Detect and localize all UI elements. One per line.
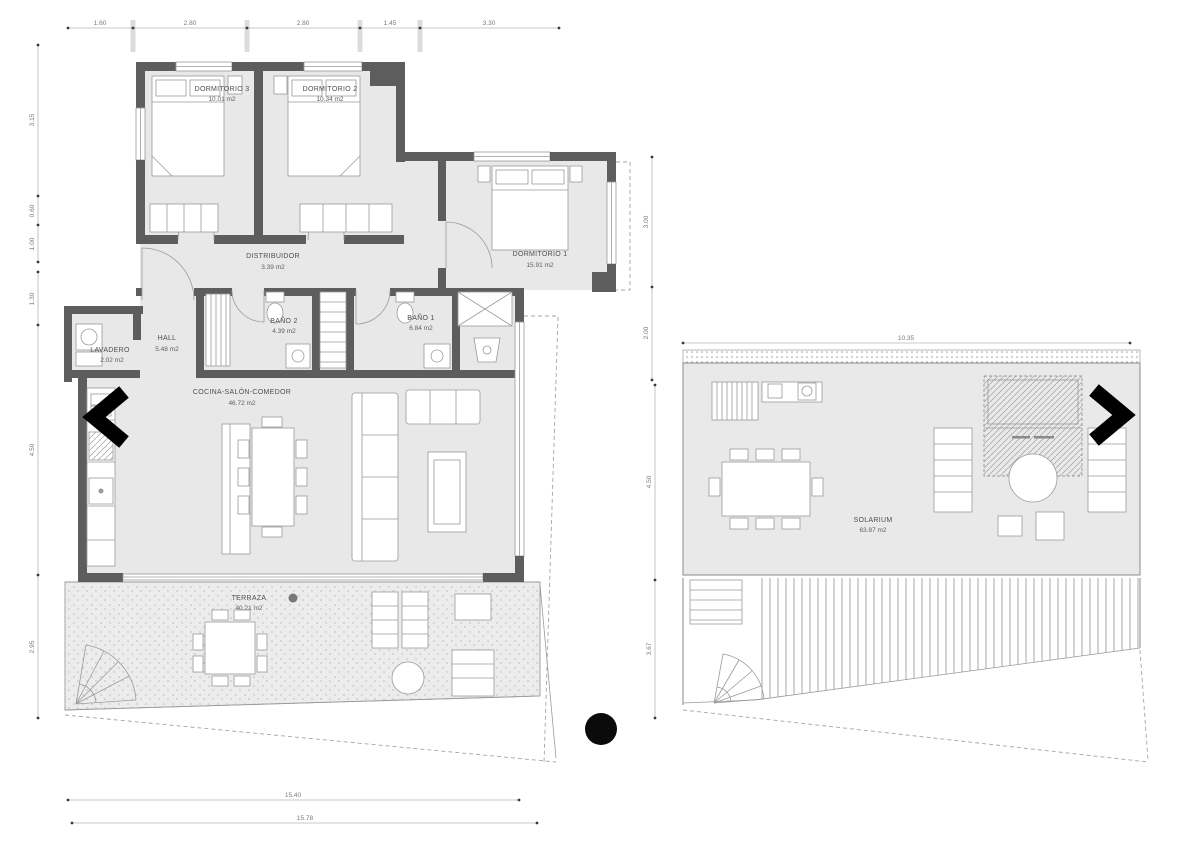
room-label-solarium-area: 63.87 m2 bbox=[859, 527, 886, 534]
linen-closet-symbol bbox=[320, 292, 346, 368]
lower-deck-band bbox=[683, 578, 1148, 762]
dim-solarium-left-0: 4.50 bbox=[646, 475, 653, 488]
window-dormitorio3 bbox=[176, 62, 232, 71]
room-label-cocina-area: 46.72 m2 bbox=[228, 400, 255, 407]
dim-bottom-1: 15.78 bbox=[297, 815, 314, 822]
solarium-roof-edge bbox=[683, 350, 1140, 363]
black-dot-marker bbox=[585, 713, 617, 745]
dim-left-0: 3.15 bbox=[29, 113, 36, 126]
window-terrace-sliding bbox=[123, 574, 483, 580]
dim-left-2: 1.00 bbox=[29, 237, 36, 250]
room-label-lavadero-name: LAVADERO bbox=[90, 347, 130, 354]
sink-symbol-bath2 bbox=[286, 344, 310, 368]
room-label-terraza-name: TERRAZA bbox=[232, 595, 267, 602]
window-dormitorio1-side bbox=[607, 182, 616, 264]
solarium-side-table-2 bbox=[1036, 512, 1064, 540]
double-bed-symbol-dorm1 bbox=[478, 166, 582, 250]
room-label-bath1-area: 6.84 m2 bbox=[409, 325, 433, 332]
window-living-right bbox=[515, 322, 524, 556]
room-label-distribuidor-area: 3.39 m2 bbox=[261, 264, 285, 271]
solarium-lounger-left bbox=[934, 428, 972, 512]
window-dormitorio1 bbox=[474, 152, 550, 161]
sink-symbol-bath1 bbox=[424, 344, 450, 368]
apartment-plan: DORMITORIO 3 10.01 m2 DORMITORIO 2 10.34… bbox=[29, 20, 653, 824]
solarium-lounger-right bbox=[1088, 428, 1126, 512]
room-label-dormitorio1-area: 15.91 m2 bbox=[526, 262, 553, 269]
dim-top-0: 1.60 bbox=[94, 20, 107, 27]
room-label-dormitorio3-area: 10.01 m2 bbox=[208, 96, 235, 103]
stairs-symbol bbox=[712, 382, 758, 420]
room-label-bath2-name: BAÑO 2 bbox=[270, 316, 297, 325]
dim-left-3: 1.30 bbox=[29, 292, 36, 305]
window-left bbox=[136, 108, 145, 160]
shower-symbol-bath2 bbox=[206, 294, 230, 366]
dim-top-4: 3.30 bbox=[483, 20, 496, 27]
room-label-hall-name: HALL bbox=[158, 335, 177, 342]
dim-bottom-0: 15.40 bbox=[285, 792, 302, 799]
dim-top-1: 2.80 bbox=[184, 20, 197, 27]
terrace-armchair bbox=[452, 650, 494, 696]
dim-left-4: 4.50 bbox=[29, 443, 36, 456]
floor-plan-canvas: DORMITORIO 3 10.01 m2 DORMITORIO 2 10.34… bbox=[0, 0, 1200, 847]
dim-solarium-top-0: 10.35 bbox=[898, 335, 915, 342]
wardrobe-symbol-dorm3 bbox=[150, 204, 218, 232]
room-label-bath2-area: 4.39 m2 bbox=[272, 328, 296, 335]
room-label-bath1-name: BAÑO 1 bbox=[407, 313, 434, 322]
room-label-dormitorio3-name: DORMITORIO 3 bbox=[195, 86, 250, 93]
washing-machine-symbol bbox=[76, 324, 102, 366]
room-label-dormitorio2-area: 10.34 m2 bbox=[316, 96, 343, 103]
column-dot bbox=[289, 594, 298, 603]
room-label-lavadero-area: 2.02 m2 bbox=[100, 357, 124, 364]
dim-solarium-left-1: 3.67 bbox=[646, 642, 653, 655]
dim-left-5: 2.95 bbox=[29, 640, 36, 653]
solarium-plan: SOLARIUM 63.87 m2 10.35 4.50 3.67 bbox=[646, 335, 1148, 762]
dim-right-1: 2.00 bbox=[643, 326, 650, 339]
dim-top-3: 1.45 bbox=[384, 20, 397, 27]
room-label-solarium-name: SOLARIUM bbox=[854, 517, 893, 524]
jacuzzi-symbol bbox=[1009, 454, 1057, 502]
room-label-dormitorio2-name: DORMITORIO 2 bbox=[303, 86, 358, 93]
terrace-round-table bbox=[392, 662, 424, 694]
solarium-steps-symbol bbox=[690, 580, 742, 624]
dim-right-0: 3.00 bbox=[643, 215, 650, 228]
room-label-dormitorio1-name: DORMITORIO 1 bbox=[513, 251, 568, 258]
room-label-cocina-name: COCINA-SALÓN-COMEDOR bbox=[193, 387, 291, 396]
outdoor-counter-symbol bbox=[762, 382, 822, 402]
dim-top-2: 2.80 bbox=[297, 20, 310, 27]
wardrobe-symbol-dorm2 bbox=[300, 204, 392, 232]
room-label-distribuidor-name: DISTRIBUIDOR bbox=[246, 253, 300, 260]
solarium-side-table-1 bbox=[998, 516, 1022, 536]
room-label-hall-area: 5.48 m2 bbox=[155, 346, 179, 353]
floor-plan-drawing: DORMITORIO 3 10.01 m2 DORMITORIO 2 10.34… bbox=[0, 0, 1200, 847]
dim-left-1: 0.60 bbox=[29, 204, 36, 217]
window-dormitorio2 bbox=[304, 62, 362, 71]
terrace-side-table bbox=[455, 594, 491, 620]
room-label-terraza-area: 40.21 m2 bbox=[235, 605, 262, 612]
